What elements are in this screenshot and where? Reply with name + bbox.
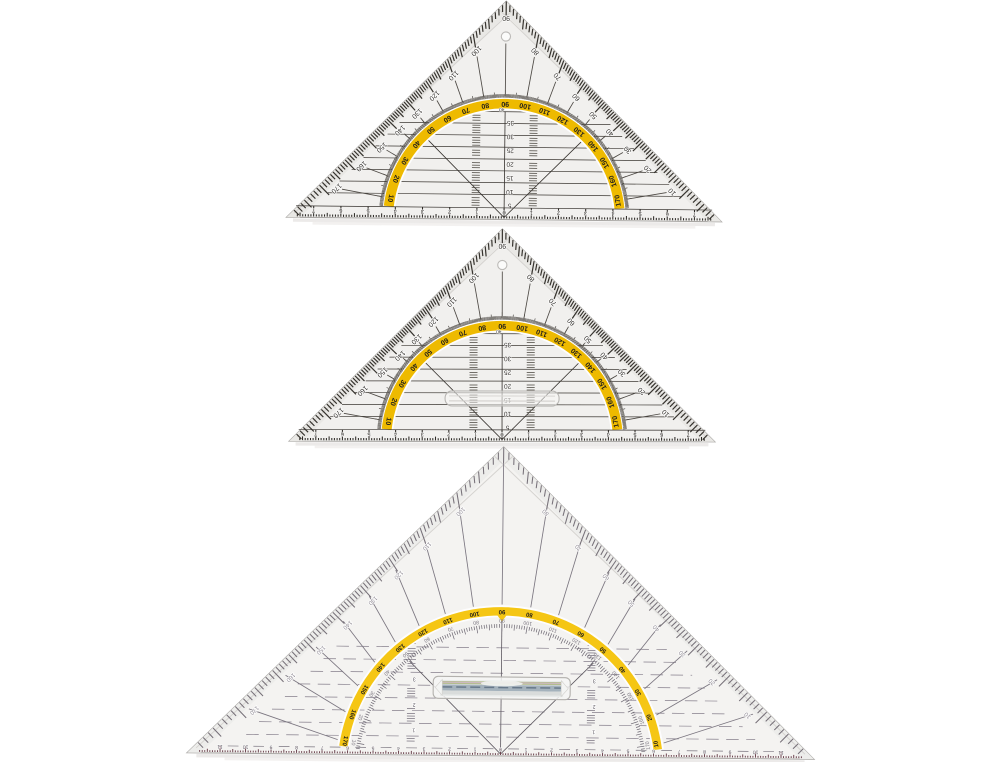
svg-text:25: 25 [504, 369, 512, 376]
svg-text:8: 8 [295, 744, 298, 750]
svg-text:3: 3 [575, 747, 578, 753]
svg-text:2: 2 [412, 701, 415, 707]
svg-text:1: 1 [524, 746, 527, 752]
svg-text:40: 40 [496, 328, 502, 334]
svg-text:7: 7 [693, 211, 696, 217]
svg-text:2: 2 [592, 703, 595, 709]
svg-text:1: 1 [412, 727, 415, 733]
svg-text:3: 3 [593, 677, 596, 683]
svg-text:9: 9 [269, 744, 272, 750]
svg-text:5: 5 [371, 745, 374, 751]
svg-text:90: 90 [498, 608, 505, 614]
svg-text:2: 2 [554, 431, 557, 437]
svg-text:6: 6 [652, 748, 655, 754]
svg-text:3: 3 [580, 431, 583, 437]
svg-text:0: 0 [500, 431, 503, 437]
svg-text:7: 7 [320, 744, 323, 750]
svg-text:7: 7 [677, 748, 680, 754]
svg-text:80: 80 [472, 619, 479, 626]
svg-text:2: 2 [448, 208, 451, 214]
svg-text:1: 1 [473, 746, 476, 752]
svg-text:7: 7 [312, 207, 315, 213]
svg-text:5: 5 [638, 210, 641, 216]
svg-text:6: 6 [660, 431, 663, 437]
svg-text:3: 3 [413, 676, 416, 682]
svg-text:10: 10 [384, 417, 392, 426]
svg-text:1: 1 [530, 209, 533, 215]
svg-text:2: 2 [557, 209, 560, 215]
svg-text:90: 90 [501, 100, 509, 107]
svg-text:1: 1 [474, 431, 477, 437]
svg-text:10: 10 [386, 194, 394, 203]
svg-text:30: 30 [506, 133, 514, 140]
svg-text:90: 90 [498, 242, 506, 249]
svg-text:0: 0 [502, 209, 505, 215]
svg-text:5: 5 [633, 431, 636, 437]
svg-text:5: 5 [367, 430, 370, 436]
svg-text:10: 10 [753, 749, 759, 755]
svg-text:1: 1 [592, 728, 595, 734]
svg-text:2: 2 [448, 745, 451, 751]
svg-text:3: 3 [421, 208, 424, 214]
svg-text:6: 6 [339, 207, 342, 213]
svg-text:9: 9 [728, 748, 731, 754]
svg-text:8: 8 [703, 748, 706, 754]
svg-text:4: 4 [601, 747, 604, 753]
svg-text:1: 1 [527, 431, 530, 437]
svg-text:10: 10 [243, 743, 249, 749]
svg-text:25: 25 [506, 147, 514, 154]
svg-text:40: 40 [499, 106, 505, 112]
svg-text:11: 11 [217, 743, 223, 749]
svg-text:7: 7 [314, 430, 317, 436]
svg-text:35: 35 [506, 119, 514, 126]
svg-text:15: 15 [506, 174, 514, 181]
svg-text:10: 10 [504, 410, 512, 417]
svg-text:20: 20 [506, 160, 514, 167]
svg-text:80: 80 [478, 323, 487, 331]
svg-text:3: 3 [584, 210, 587, 216]
svg-text:0: 0 [499, 746, 502, 752]
svg-text:11: 11 [778, 749, 784, 755]
svg-text:3: 3 [421, 431, 424, 437]
svg-text:35: 35 [504, 341, 512, 348]
svg-text:3: 3 [422, 745, 425, 751]
svg-text:1: 1 [475, 208, 478, 214]
svg-text:2: 2 [447, 431, 450, 437]
svg-text:7: 7 [687, 431, 690, 437]
svg-text:20: 20 [504, 382, 512, 389]
svg-text:90: 90 [499, 617, 505, 623]
svg-text:5: 5 [626, 747, 629, 753]
svg-text:2: 2 [550, 747, 553, 753]
svg-text:90: 90 [502, 14, 510, 21]
svg-text:6: 6 [346, 744, 349, 750]
svg-text:80: 80 [481, 101, 490, 109]
svg-text:4: 4 [397, 745, 400, 751]
svg-text:10: 10 [349, 739, 356, 746]
svg-text:90: 90 [498, 322, 506, 329]
svg-text:5: 5 [366, 207, 369, 213]
svg-text:6: 6 [666, 210, 669, 216]
svg-text:10: 10 [506, 188, 514, 195]
svg-text:30: 30 [504, 355, 512, 362]
svg-text:6: 6 [341, 430, 344, 436]
